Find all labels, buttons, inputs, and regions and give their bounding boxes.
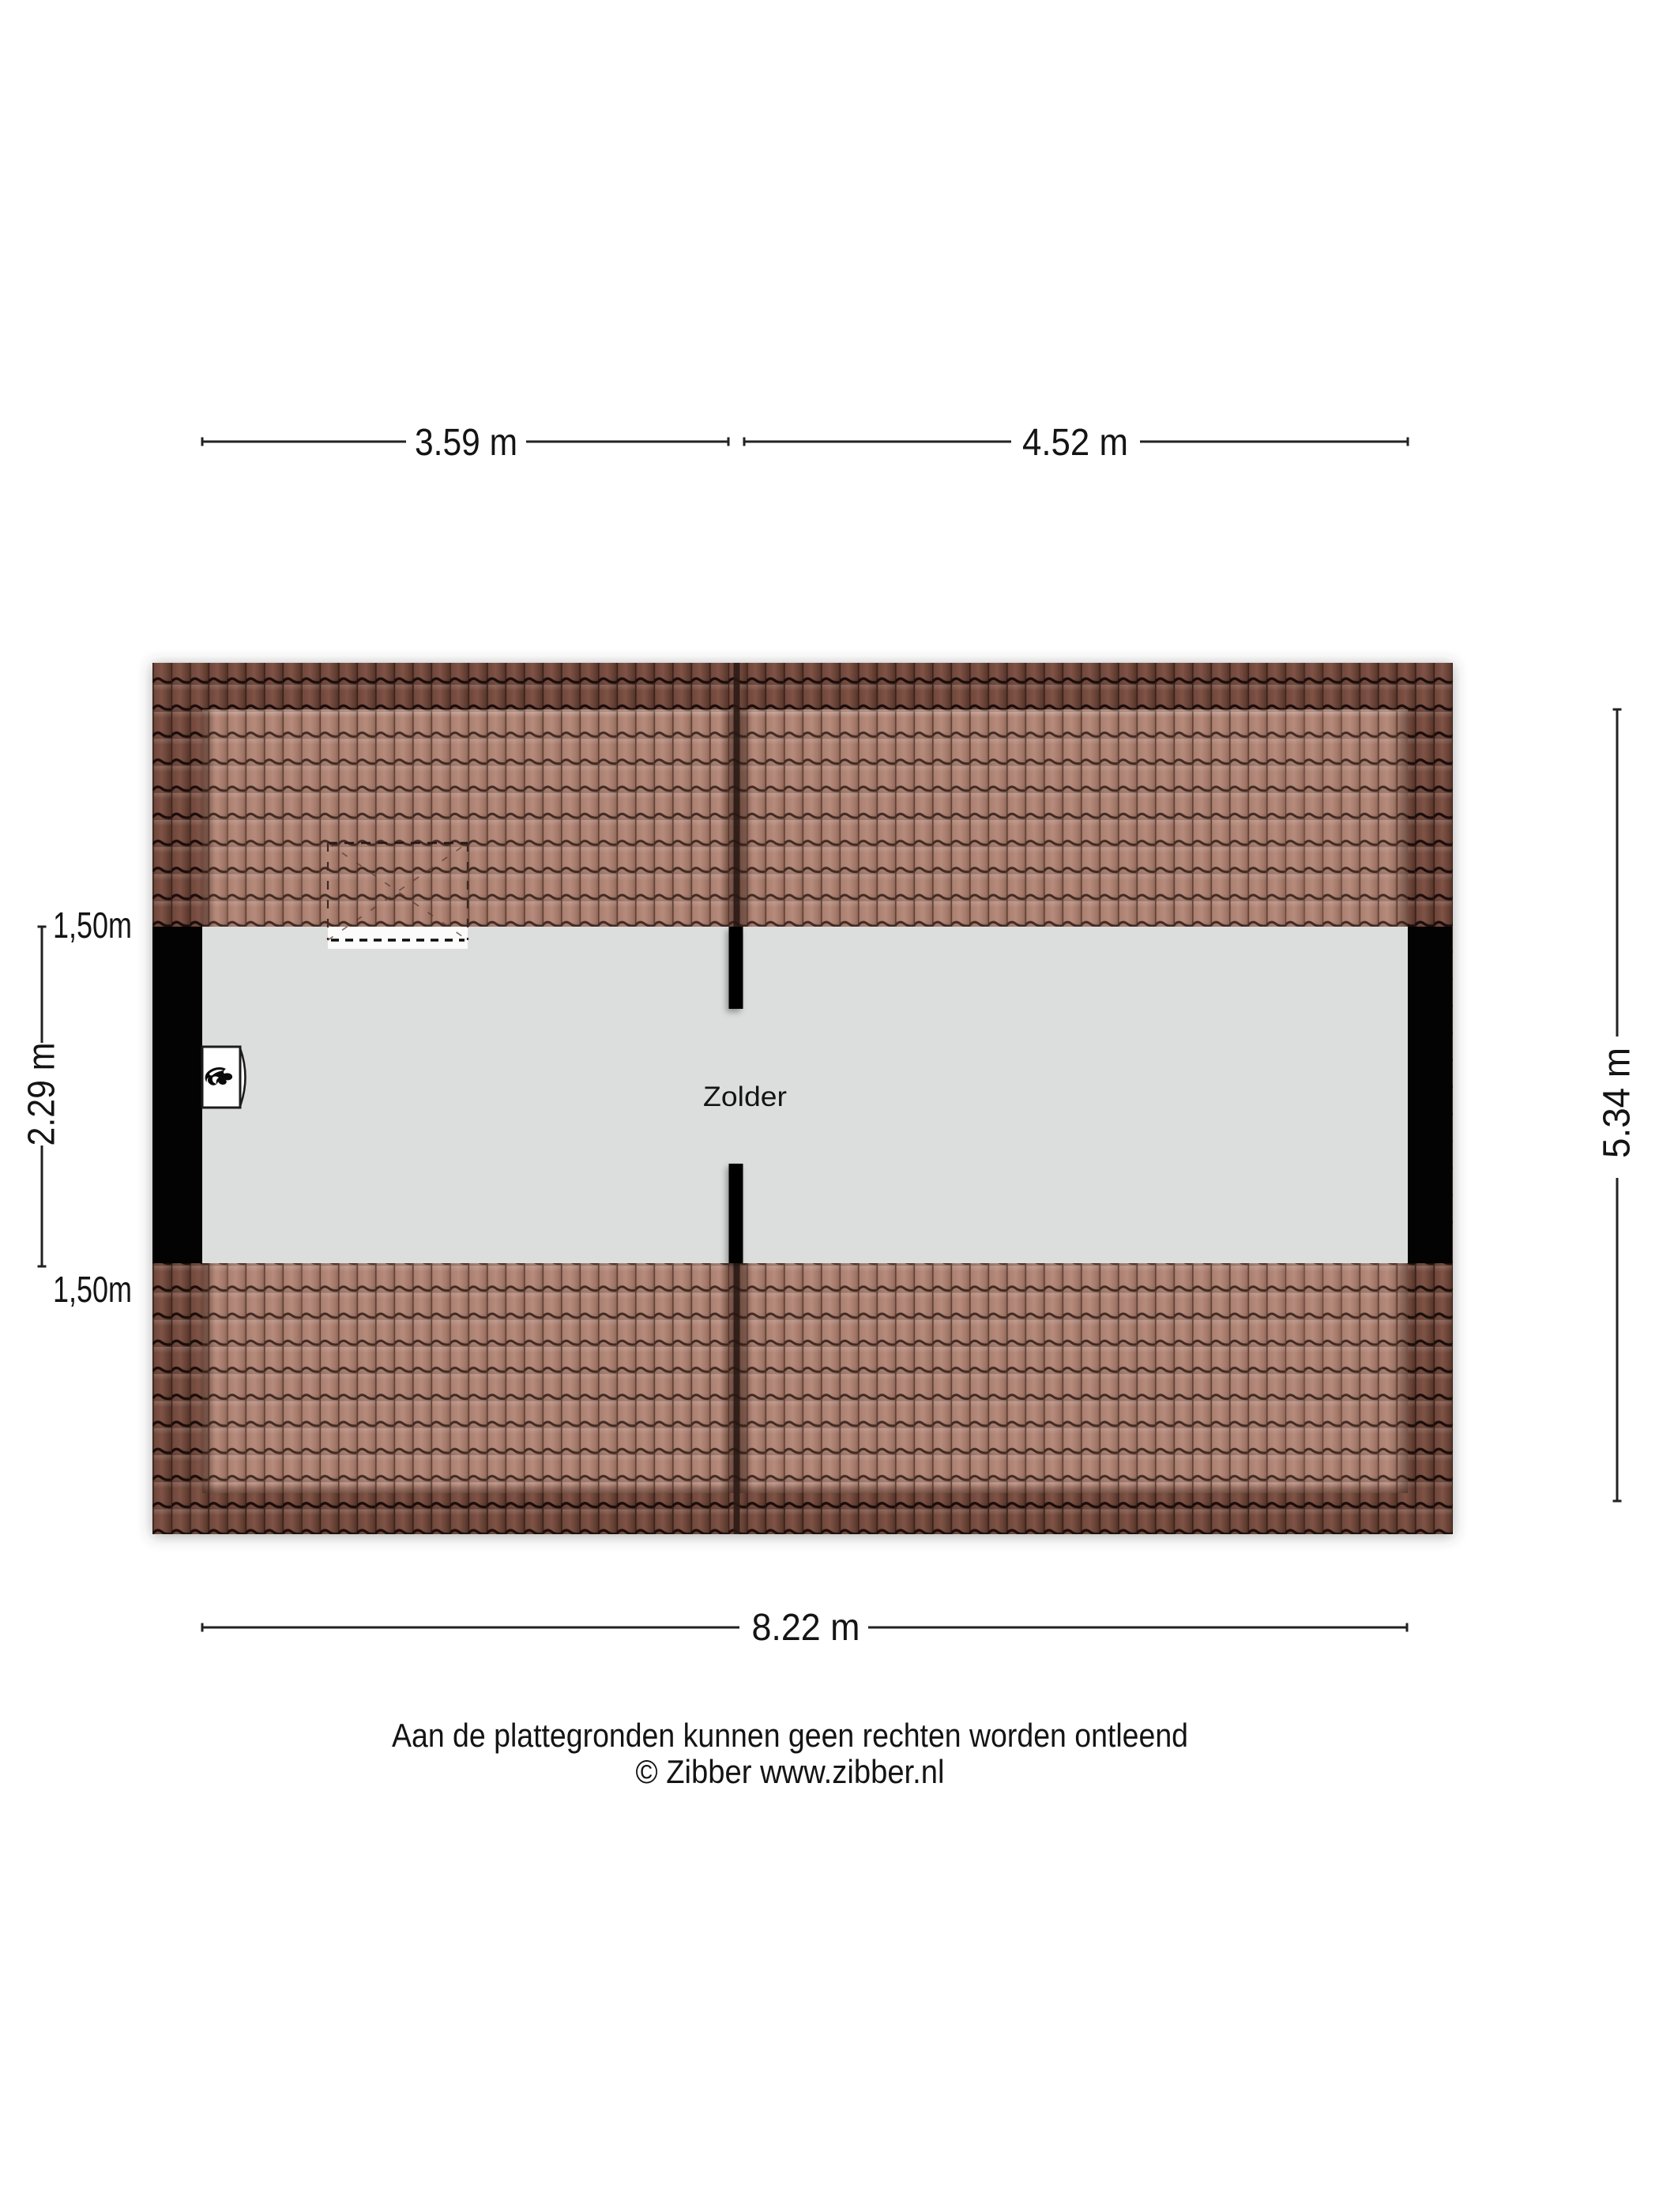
svg-text:© Zibber www.zibber.nl: © Zibber www.zibber.nl: [636, 1753, 945, 1790]
svg-text:4.52 m: 4.52 m: [1022, 422, 1128, 464]
svg-text:Aan de plattegronden kunnen ge: Aan de plattegronden kunnen geen rechten…: [392, 1717, 1188, 1754]
svg-text:8.22 m: 8.22 m: [752, 1607, 860, 1649]
svg-text:1,50m: 1,50m: [53, 1269, 132, 1310]
svg-text:Zolder: Zolder: [703, 1082, 787, 1112]
svg-text:2.29 m: 2.29 m: [21, 1043, 63, 1146]
svg-text:3.59 m: 3.59 m: [415, 422, 517, 464]
svg-text:1,50m: 1,50m: [53, 905, 132, 946]
svg-text:5.34 m: 5.34 m: [1597, 1048, 1638, 1158]
